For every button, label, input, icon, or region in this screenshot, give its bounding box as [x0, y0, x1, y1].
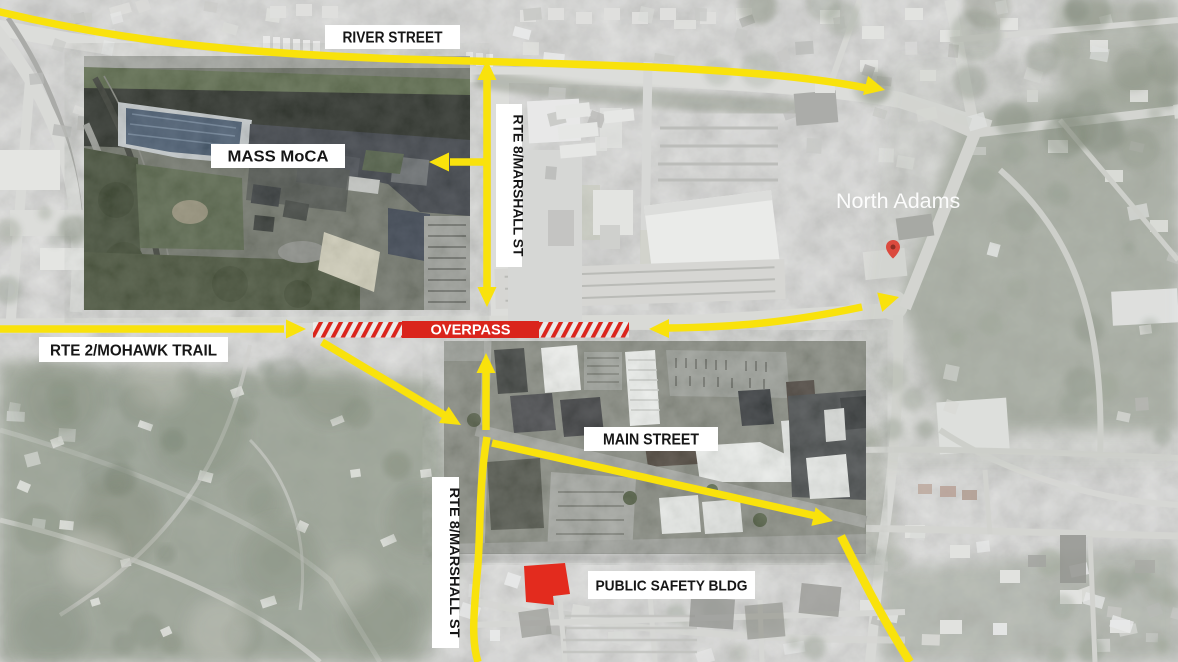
svg-text:RTE 2/MOHAWK TRAIL: RTE 2/MOHAWK TRAIL — [50, 343, 217, 360]
svg-text:North Adams: North Adams — [836, 189, 960, 213]
svg-text:MASS MoCA: MASS MoCA — [228, 149, 329, 166]
svg-text:OVERPASS: OVERPASS — [431, 322, 511, 339]
svg-text:PUBLIC SAFETY BLDG: PUBLIC SAFETY BLDG — [596, 578, 748, 595]
svg-text:RTE 8/MARSHALL ST: RTE 8/MARSHALL ST — [511, 115, 527, 257]
svg-text:RTE 8/MARSHALL ST: RTE 8/MARSHALL ST — [447, 488, 463, 638]
svg-text:RIVER STREET: RIVER STREET — [343, 30, 443, 47]
svg-text:MAIN STREET: MAIN STREET — [603, 432, 699, 449]
